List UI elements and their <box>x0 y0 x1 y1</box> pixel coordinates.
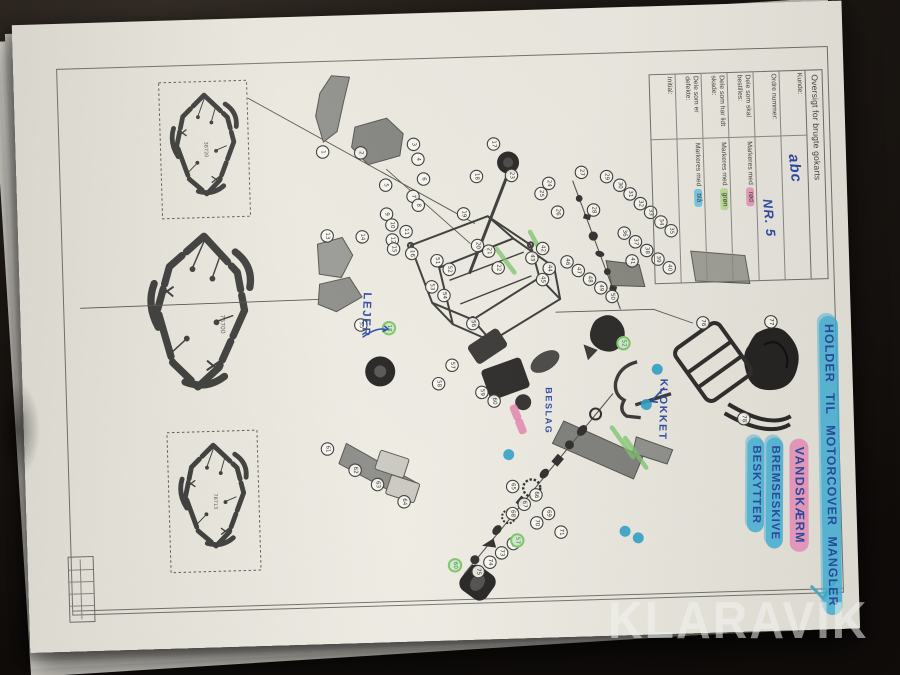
svg-text:62: 62 <box>352 467 358 474</box>
part-marker: 69 <box>542 507 555 520</box>
svg-text:53: 53 <box>429 283 435 291</box>
part-marker: 64 <box>398 495 411 508</box>
svg-text:60: 60 <box>491 397 497 405</box>
svg-text:1: 1 <box>320 150 326 154</box>
part-marker: 19 <box>457 208 470 221</box>
part-marker: 1 <box>316 146 329 159</box>
svg-text:18: 18 <box>473 173 479 181</box>
svg-text:10: 10 <box>389 221 395 229</box>
svg-text:46: 46 <box>564 258 570 266</box>
part-marker: 66 <box>530 488 543 501</box>
part-marker: 78 <box>737 412 750 425</box>
svg-text:76: 76 <box>700 319 706 327</box>
svg-text:49: 49 <box>598 284 604 292</box>
part-marker: 70 <box>530 516 543 529</box>
frame-label-middle: 76700 <box>218 314 226 333</box>
seat-frame <box>672 320 753 403</box>
svg-text:65: 65 <box>510 483 516 491</box>
svg-text:32: 32 <box>637 200 643 207</box>
photo-of-document: 38720 76700 78713 <box>0 0 900 675</box>
svg-text:56: 56 <box>470 320 476 328</box>
part-marker: 27 <box>575 166 588 179</box>
svg-text:42: 42 <box>540 245 546 252</box>
svg-text:45: 45 <box>539 276 545 284</box>
svg-text:75: 75 <box>475 568 481 576</box>
part-marker: 37 <box>629 235 642 248</box>
part-marker: 68 <box>506 507 519 520</box>
green-highlight-swatch: grøn <box>720 188 729 210</box>
blue-highlighter-dot <box>503 449 514 460</box>
svg-text:7: 7 <box>410 195 416 199</box>
part-marker: 22 <box>492 262 505 275</box>
pen-note-klokket: KLOKKET <box>648 378 670 448</box>
part-marker: 41 <box>626 255 639 268</box>
svg-text:67: 67 <box>521 501 527 509</box>
part-marker: 45 <box>536 273 549 286</box>
part-marker: 60 <box>488 395 501 408</box>
pen-note-lejer: LEJER <box>345 292 373 348</box>
svg-text:3: 3 <box>410 142 416 146</box>
svg-text:26: 26 <box>554 208 560 216</box>
svg-text:9: 9 <box>384 212 390 216</box>
part-marker: 65 <box>506 480 519 493</box>
svg-text:38: 38 <box>644 247 650 255</box>
part-marker: 18 <box>470 170 483 183</box>
paper-edge-shadow <box>0 382 40 478</box>
svg-text:66: 66 <box>533 491 539 499</box>
part-marker: 29 <box>600 170 613 183</box>
part-marker: 20 <box>471 239 484 252</box>
title-block <box>68 556 96 623</box>
part-marker: 58 <box>432 377 445 390</box>
svg-text:78: 78 <box>741 415 747 423</box>
svg-text:20: 20 <box>474 242 480 250</box>
svg-text:69: 69 <box>545 510 551 518</box>
svg-text:16: 16 <box>409 250 415 258</box>
svg-text:58: 58 <box>435 380 441 388</box>
part-marker: 2 <box>354 147 367 160</box>
svg-text:24: 24 <box>546 180 552 188</box>
part-marker: 53 <box>425 280 438 293</box>
svg-text:52: 52 <box>620 340 626 347</box>
frame-label-top: 38720 <box>202 141 208 157</box>
svg-text:23: 23 <box>508 172 514 180</box>
svg-text:37: 37 <box>632 238 638 246</box>
part-marker: 4 <box>412 153 425 166</box>
svg-text:4: 4 <box>415 157 421 161</box>
axle-chain <box>453 179 628 574</box>
part-marker: 47 <box>572 264 585 277</box>
part-marker: 51 <box>431 254 444 267</box>
part-marker: 67 <box>518 498 531 511</box>
svg-text:31: 31 <box>627 190 633 198</box>
part-marker: 38 <box>640 244 653 257</box>
part-marker: 77 <box>765 315 778 328</box>
pen-note-beslag: BESLAG <box>538 387 554 431</box>
svg-text:60: 60 <box>452 562 458 570</box>
part-marker: 48 <box>583 273 596 286</box>
svg-text:73: 73 <box>499 549 505 557</box>
svg-text:15: 15 <box>390 245 396 253</box>
drawing-sheet: 38720 76700 78713 <box>12 1 860 653</box>
part-marker: 52 <box>443 263 456 276</box>
part-marker: 54 <box>438 289 451 302</box>
part-marker: 13 <box>321 230 334 243</box>
svg-text:27: 27 <box>578 169 584 177</box>
blue-highlighter-dot <box>633 532 644 543</box>
svg-text:43: 43 <box>529 254 535 262</box>
svg-text:19: 19 <box>460 210 466 218</box>
part-marker: 23 <box>505 169 518 182</box>
part-marker: 74 <box>484 556 497 569</box>
part-marker: 44 <box>543 262 556 275</box>
red-highlight-swatch: rød <box>746 188 755 206</box>
part-marker: 59 <box>476 386 489 399</box>
svg-text:57: 57 <box>449 362 455 370</box>
svg-text:70: 70 <box>534 519 540 527</box>
part-marker: 30 <box>613 179 626 192</box>
handwritten-customer: abc <box>785 153 805 184</box>
marker-note-bremseskive: BREMSESKIVE BESKYTTER <box>737 437 783 605</box>
part-marker: 57 <box>446 359 459 372</box>
svg-text:8: 8 <box>415 203 421 207</box>
svg-text:11: 11 <box>403 228 409 236</box>
part-marker: 76 <box>697 316 710 329</box>
part-marker: 25 <box>535 187 548 200</box>
svg-text:25: 25 <box>538 190 544 198</box>
part-marker: 21 <box>482 245 495 258</box>
part-marker: 52 <box>617 337 630 350</box>
svg-text:64: 64 <box>401 498 407 506</box>
marker-note-vandskaerm: VANDSKÆRM <box>785 439 808 555</box>
part-marker: 63 <box>371 478 384 491</box>
part-marker: 75 <box>472 565 485 578</box>
svg-text:61: 61 <box>324 445 330 453</box>
svg-text:54: 54 <box>441 292 447 300</box>
part-marker: 43 <box>526 251 539 264</box>
part-marker: 3 <box>407 138 420 151</box>
svg-text:74: 74 <box>487 559 493 567</box>
svg-text:2: 2 <box>358 151 364 155</box>
part-marker: 26 <box>551 206 564 219</box>
svg-text:77: 77 <box>768 318 774 326</box>
part-marker: 17 <box>487 138 500 151</box>
marker-note-holder-til-motorcover: HOLDER TIL MOTORCOVER MANGLER <box>808 316 842 594</box>
svg-text:29: 29 <box>603 173 609 181</box>
part-marker: 15 <box>387 243 400 256</box>
blue-highlight-swatch: blå <box>694 189 703 206</box>
svg-text:52: 52 <box>446 266 452 273</box>
svg-text:30: 30 <box>617 182 623 190</box>
handwritten-order-number: NR. 5 <box>760 198 779 238</box>
part-marker: 11 <box>400 225 413 238</box>
frame-drawing-middle <box>148 234 253 389</box>
part-marker: 14 <box>356 231 369 244</box>
part-marker: 16 <box>405 247 418 260</box>
svg-text:68: 68 <box>509 510 515 518</box>
part-marker: 32 <box>634 197 647 210</box>
pink-highlighter-dab <box>514 417 527 435</box>
part-marker: 62 <box>349 464 362 477</box>
part-marker: 71 <box>555 526 568 539</box>
svg-text:50: 50 <box>609 293 615 301</box>
part-marker: 61 <box>321 443 334 456</box>
svg-text:41: 41 <box>629 257 635 265</box>
part-marker: 5 <box>379 179 392 192</box>
svg-text:48: 48 <box>586 276 592 284</box>
blue-highlighter-dot <box>652 364 663 375</box>
blue-highlighter-dot <box>619 526 630 537</box>
watermark: KLARAVIK <box>608 592 868 651</box>
svg-text:5: 5 <box>383 183 389 187</box>
svg-text:57: 57 <box>514 537 520 545</box>
svg-text:63: 63 <box>374 481 380 489</box>
support-rails <box>724 402 791 430</box>
svg-text:14: 14 <box>359 233 365 241</box>
svg-text:71: 71 <box>558 528 564 536</box>
part-marker: 8 <box>412 199 425 212</box>
part-marker: 56 <box>466 317 479 330</box>
gokart-info-table: Oversigt for brugte gokarts Kunde: abc O… <box>649 69 829 284</box>
svg-text:28: 28 <box>590 206 596 214</box>
svg-text:6: 6 <box>420 177 426 181</box>
part-marker: 6 <box>417 173 430 186</box>
svg-text:59: 59 <box>479 389 485 397</box>
part-marker: 46 <box>561 255 574 268</box>
part-marker: 18 <box>383 322 396 335</box>
part-marker: 57 <box>511 534 524 547</box>
svg-text:17: 17 <box>490 140 496 148</box>
svg-text:21: 21 <box>486 248 492 256</box>
svg-text:44: 44 <box>546 265 552 273</box>
svg-text:13: 13 <box>324 232 330 240</box>
part-marker: 36 <box>618 227 631 240</box>
part-marker: 60 <box>449 559 462 572</box>
part-marker: 10 <box>385 219 398 232</box>
frame-label-bottom: 78713 <box>212 493 218 509</box>
svg-text:22: 22 <box>495 264 501 271</box>
part-marker: 73 <box>495 547 508 560</box>
part-marker: 31 <box>624 188 637 201</box>
part-marker: 28 <box>587 204 600 217</box>
svg-text:36: 36 <box>621 229 627 237</box>
svg-text:51: 51 <box>434 257 440 265</box>
seat <box>743 327 800 391</box>
part-marker: 49 <box>594 281 607 294</box>
svg-text:47: 47 <box>575 267 581 275</box>
part-marker: 42 <box>536 242 549 255</box>
part-marker: 50 <box>606 290 619 303</box>
